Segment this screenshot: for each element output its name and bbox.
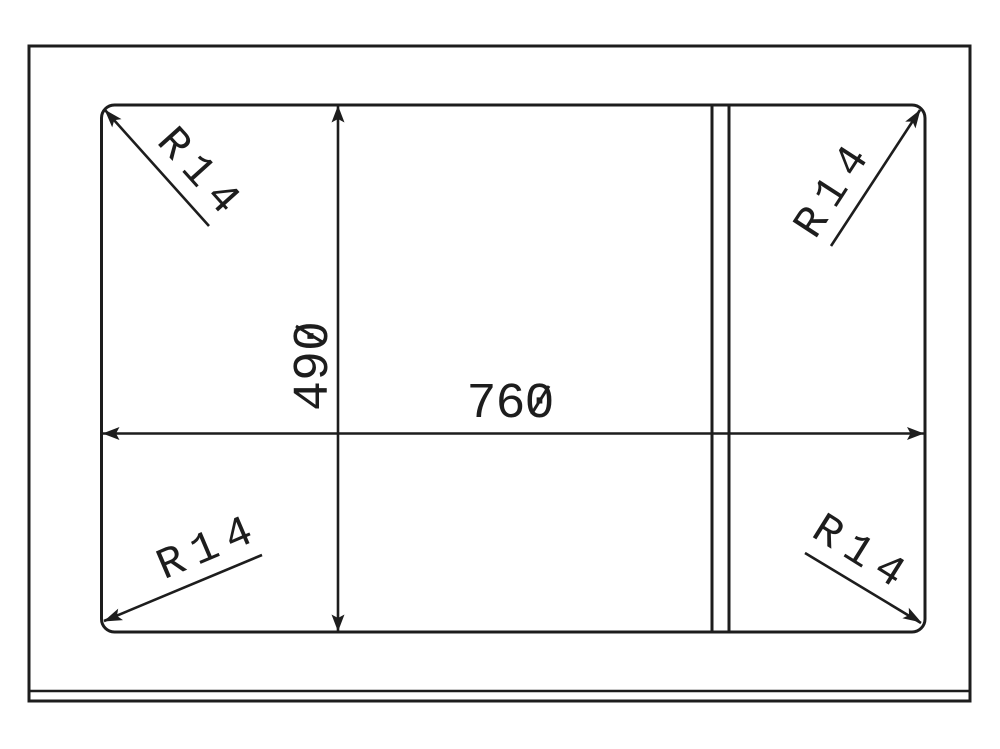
- svg-text:490: 490: [286, 321, 343, 411]
- svg-text:760: 760: [466, 376, 553, 433]
